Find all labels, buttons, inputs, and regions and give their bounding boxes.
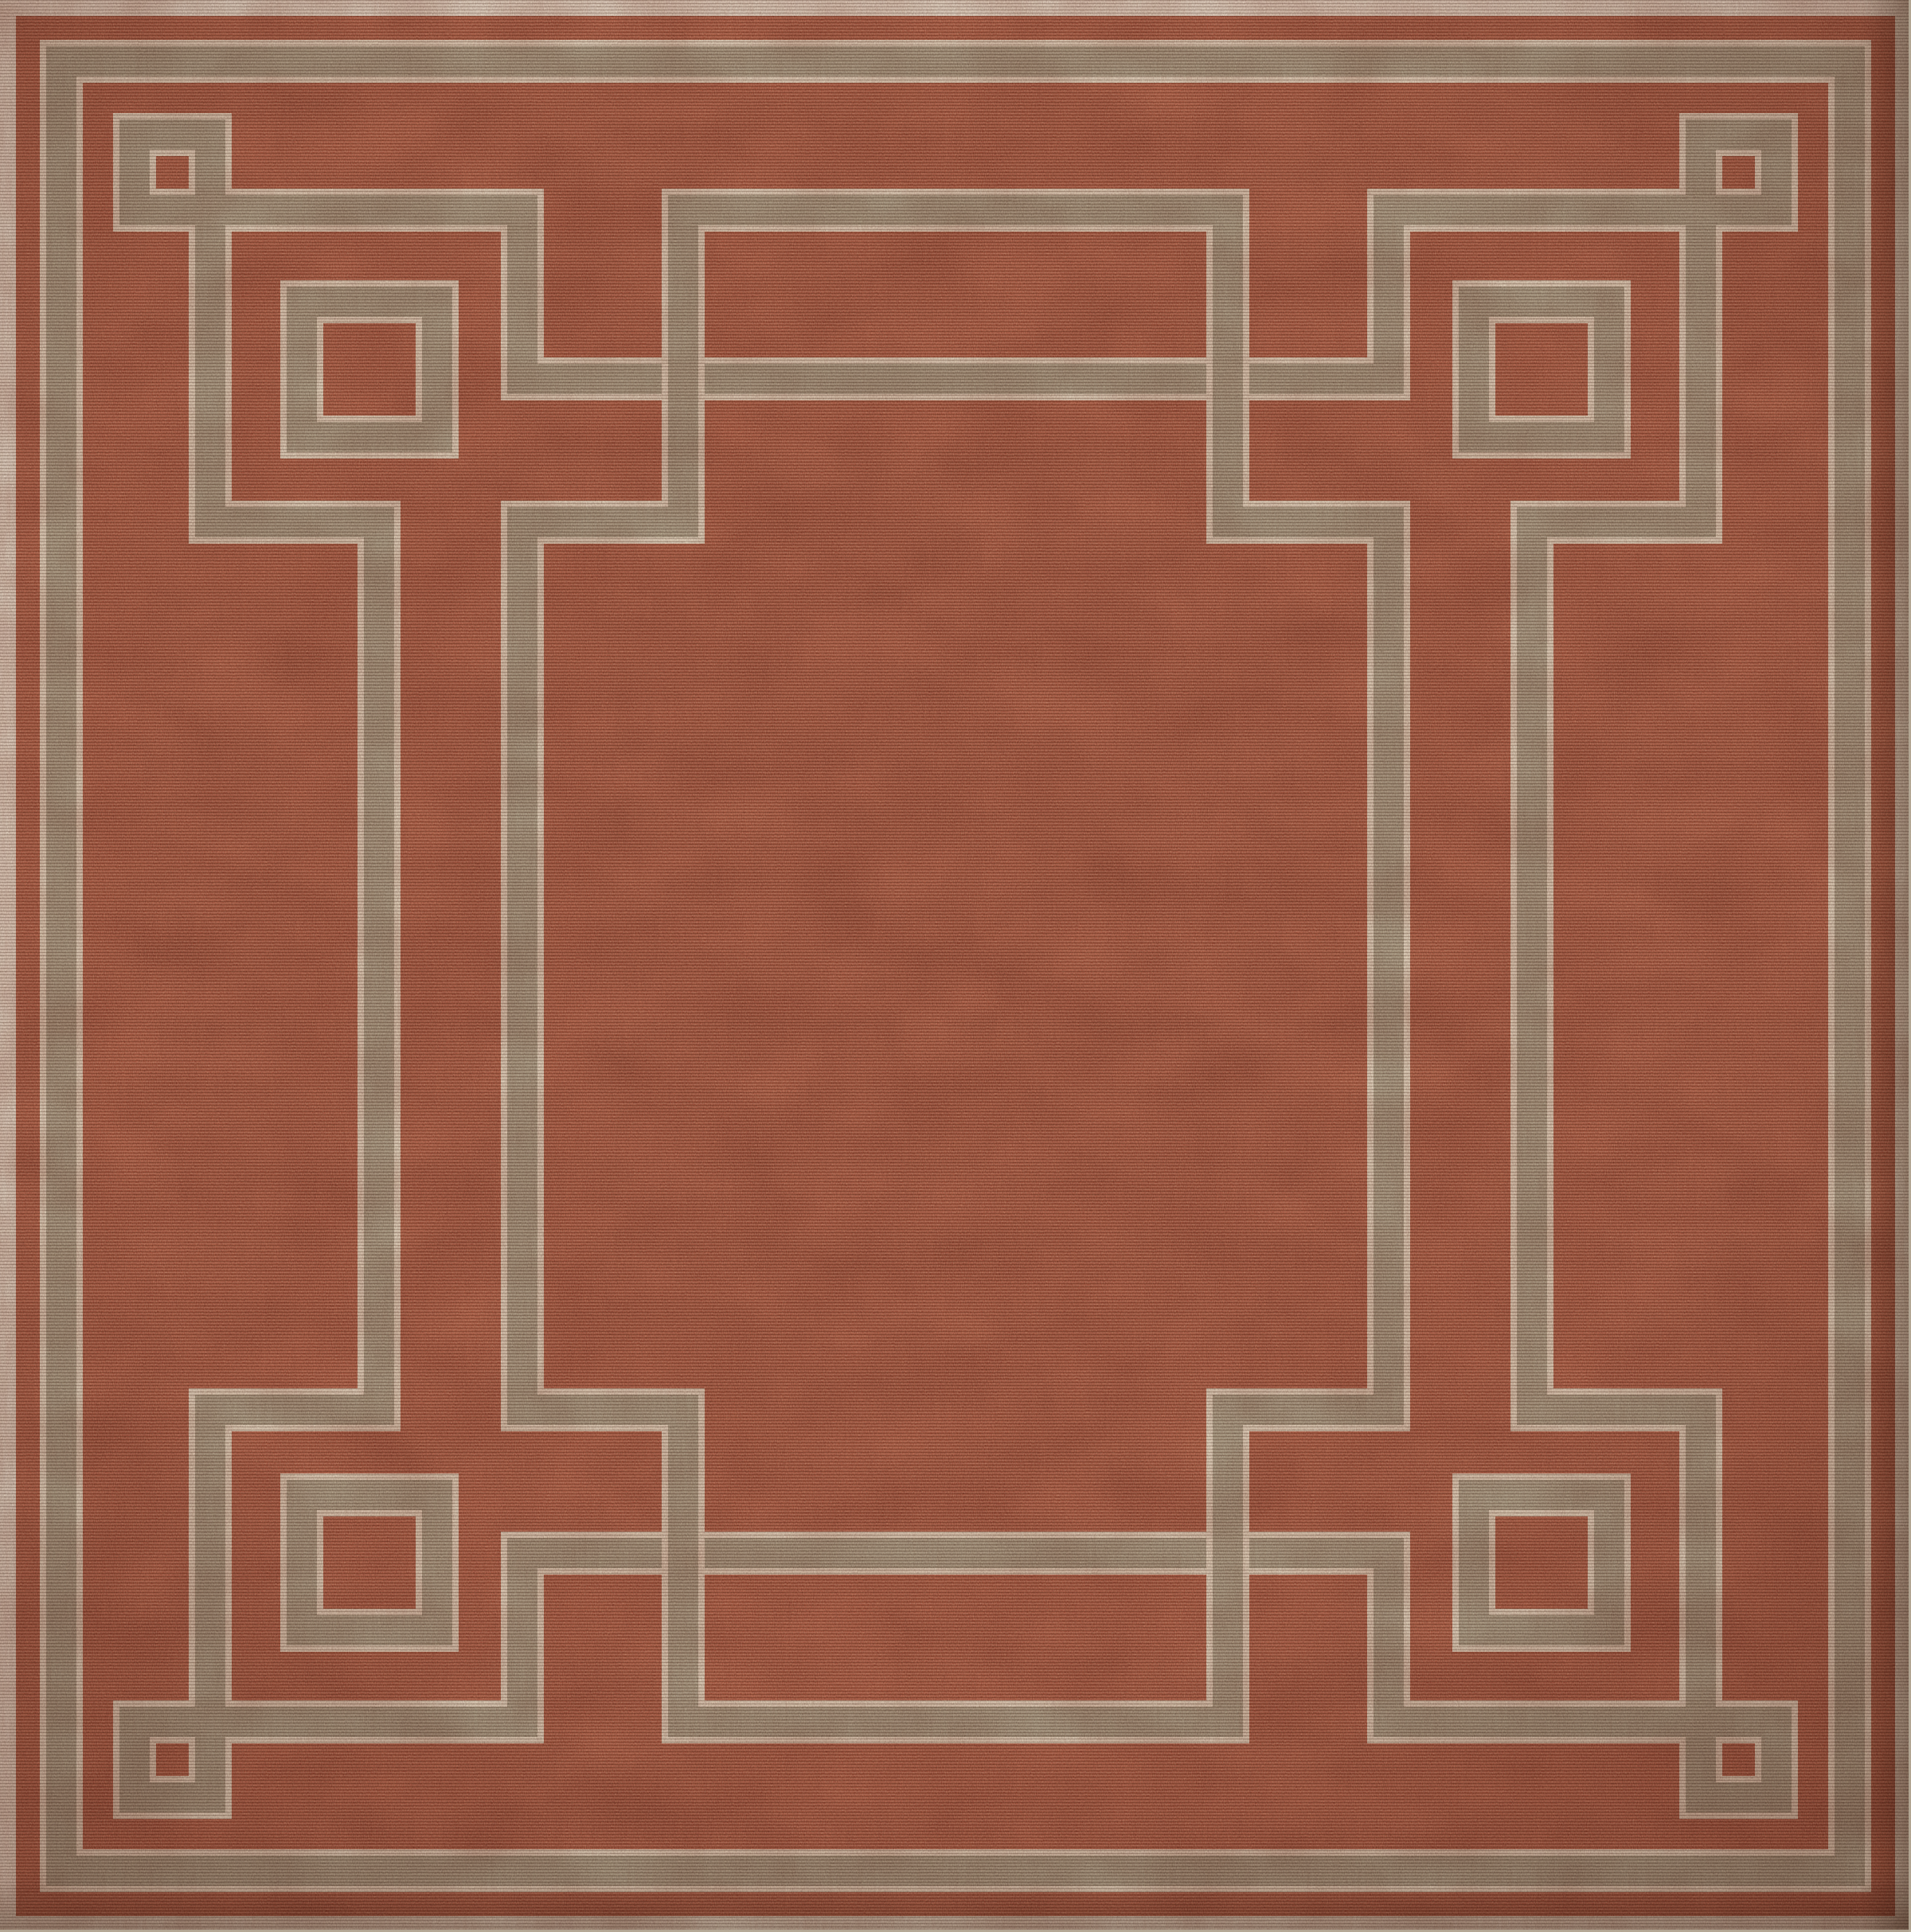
- texture-overlays: [0, 0, 1911, 1932]
- rug-photo-svg: [0, 0, 1911, 1932]
- right-edge-shadow: [1860, 0, 1911, 1932]
- rug-photo: [0, 0, 1911, 1932]
- photo-vignette: [0, 0, 1911, 1932]
- bottom-edge-shadow: [0, 1881, 1911, 1932]
